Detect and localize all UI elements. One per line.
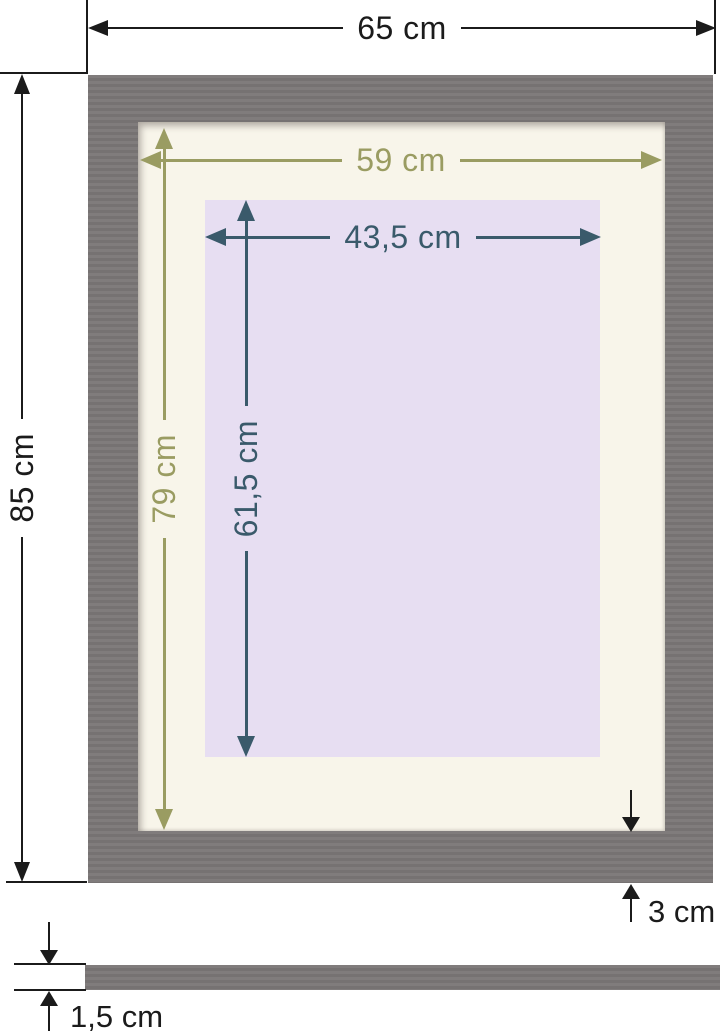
frame-depth-leader-line [48,1005,50,1031]
dimension-line [108,27,343,29]
dimension-mat-width: 59 cm [140,144,662,176]
dimension-line [21,537,23,862]
dimension-outer-width: 65 cm [88,12,716,44]
dimension-line [163,538,166,809]
dimension-line [161,159,342,162]
dimension-line [476,236,580,239]
frame-depth-leader-line [48,922,50,951]
arrowhead-up-icon [622,884,640,899]
arrowhead-down-icon [14,862,30,882]
arrowhead-up-icon [155,128,173,149]
arrowhead-down-icon [622,817,640,832]
opening-height-label: 61,5 cm [230,406,262,551]
outer-height-label: 85 cm [6,419,38,537]
arrowhead-down-icon [155,809,173,830]
arrowhead-right-icon [580,228,601,246]
frame-profile-bar [85,965,720,990]
arrowhead-up-icon [14,74,30,94]
mat-height-label: 79 cm [148,420,180,538]
arrowhead-down-icon [237,736,255,757]
dimension-opening-height: 61,5 cm [227,200,265,757]
arrowhead-left-icon [88,20,108,36]
arrowhead-right-icon [696,20,716,36]
dimension-line [461,27,696,29]
dimension-line [245,551,248,736]
frame-face-label: 3 cm [648,893,715,930]
frame-face-leader-line [630,898,632,922]
dimension-mat-height: 79 cm [145,128,183,830]
mat-width-label: 59 cm [342,144,460,176]
arrowhead-up-icon [40,991,58,1006]
frame-dimension-diagram: 65 cm 85 cm 59 cm 79 cm 43,5 cm [0,0,720,1036]
dimension-line [245,221,248,406]
dimension-outer-height: 85 cm [3,74,41,882]
outer-width-label: 65 cm [343,12,461,44]
dimension-line [21,94,23,419]
frame-face-leader-line [630,790,632,818]
arrowhead-up-icon [237,200,255,221]
arrowhead-right-icon [641,151,662,169]
arrowhead-left-icon [205,228,226,246]
opening-width-label: 43,5 cm [330,221,475,253]
frame-depth-label: 1,5 cm [70,998,163,1035]
dimension-line [163,149,166,420]
dimension-line [460,159,641,162]
arrowhead-down-icon [40,950,58,965]
